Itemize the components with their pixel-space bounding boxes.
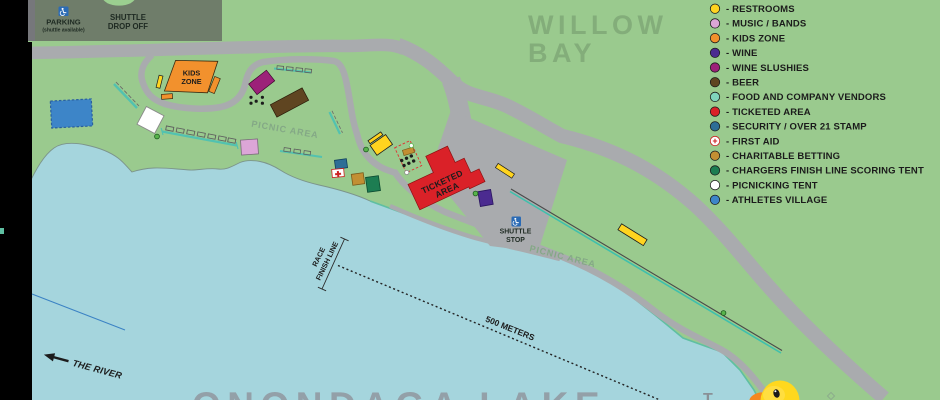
svg-text:- SECURITY / OVER 21 STAMP: - SECURITY / OVER 21 STAMP	[726, 122, 867, 133]
svg-text:- CHARITABLE BETTING: - CHARITABLE BETTING	[726, 151, 840, 162]
svg-text:- MUSIC / BANDS: - MUSIC / BANDS	[726, 19, 806, 30]
svg-text:- BEER: - BEER	[726, 78, 759, 89]
svg-text:- KIDS ZONE: - KIDS ZONE	[726, 33, 785, 44]
svg-text:- FOOD AND COMPANY VENDORS: - FOOD AND COMPANY VENDORS	[726, 92, 886, 103]
svg-text:SHUTTLE: SHUTTLE	[500, 229, 532, 236]
svg-text:STOP: STOP	[506, 237, 525, 244]
svg-text:(shuttle available): (shuttle available)	[42, 28, 85, 34]
svg-text:T: T	[703, 391, 713, 400]
svg-text:- CHARGERS FINISH LINE SCORING: - CHARGERS FINISH LINE SCORING TENT	[726, 166, 924, 177]
svg-text:- WINE SLUSHIES: - WINE SLUSHIES	[726, 63, 809, 74]
svg-text:- ATHLETES VILLAGE: - ATHLETES VILLAGE	[726, 195, 827, 206]
svg-text:SHUTTLE: SHUTTLE	[110, 13, 146, 22]
svg-text:DROP OFF: DROP OFF	[108, 22, 148, 31]
svg-text:WILLOW: WILLOW	[528, 10, 667, 40]
svg-text:- FIRST AID: - FIRST AID	[726, 136, 780, 147]
svg-text:- WINE: - WINE	[726, 48, 758, 59]
svg-text:ZONE: ZONE	[181, 77, 201, 86]
svg-text:PARKING: PARKING	[46, 18, 81, 27]
svg-text:ONONDAGA LAKE: ONONDAGA LAKE	[192, 385, 606, 400]
svg-text:BAY: BAY	[528, 38, 596, 68]
svg-text:- PICNICKING TENT: - PICNICKING TENT	[726, 180, 818, 191]
svg-text:- TICKETED AREA: - TICKETED AREA	[726, 107, 811, 118]
svg-text:- RESTROOMS: - RESTROOMS	[726, 4, 795, 15]
